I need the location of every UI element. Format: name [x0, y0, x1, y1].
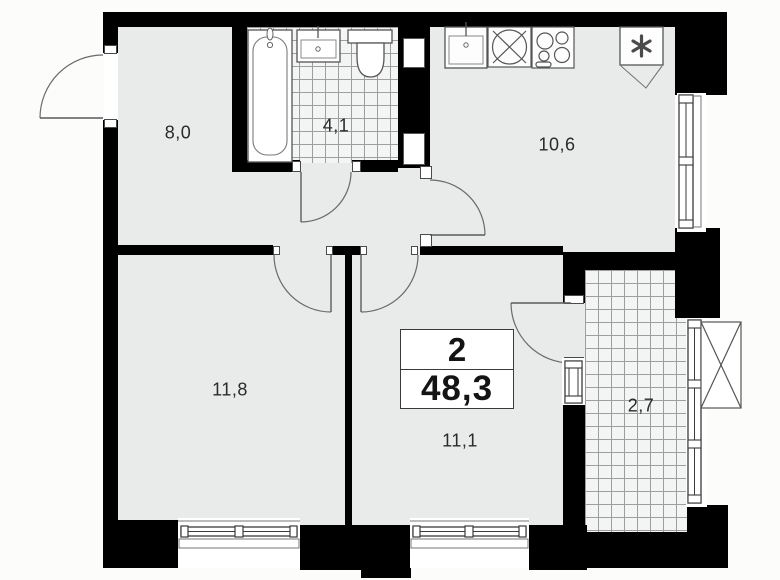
stove-icon — [532, 27, 574, 68]
balcony-door-arc-icon — [511, 303, 571, 363]
entrance-door-arc-icon — [40, 55, 103, 118]
bathroom-door-arc-icon — [301, 172, 351, 222]
room-label-kitchen: 10,6 — [538, 135, 575, 156]
room-label-hallway: 8,0 — [165, 123, 192, 144]
living-room-door-arc-icon — [274, 255, 331, 312]
floor-plan: 8,0 4,1 10,6 11,8 11,1 2,7 2 48,3 — [0, 0, 780, 580]
living-room-window-icon — [178, 518, 300, 568]
total-area: 48,3 — [401, 370, 513, 409]
bedroom-window-icon — [410, 518, 529, 568]
rooms-count: 2 — [401, 330, 513, 370]
bathtub-icon — [248, 28, 292, 162]
bedroom-door-arc-icon — [361, 255, 418, 312]
kitchen-sink-icon — [445, 22, 487, 68]
bath-sink-icon — [297, 26, 340, 62]
plan-symbols-layer — [0, 0, 780, 580]
bedroom-balcony-window-icon — [562, 358, 585, 405]
kitchen-door-arc-icon — [430, 180, 485, 235]
fridge-icon — [620, 27, 663, 88]
washing-machine-icon — [488, 27, 531, 67]
ac-unit-icon — [701, 322, 741, 408]
room-label-bedroom: 11,1 — [442, 431, 478, 452]
room-label-bathroom: 4,1 — [323, 116, 350, 137]
room-label-balcony: 2,7 — [628, 396, 655, 417]
apartment-info-box: 2 48,3 — [400, 329, 514, 409]
toilet-icon — [348, 30, 392, 77]
kitchen-window-icon — [677, 93, 706, 232]
room-label-living: 11,8 — [212, 380, 248, 401]
